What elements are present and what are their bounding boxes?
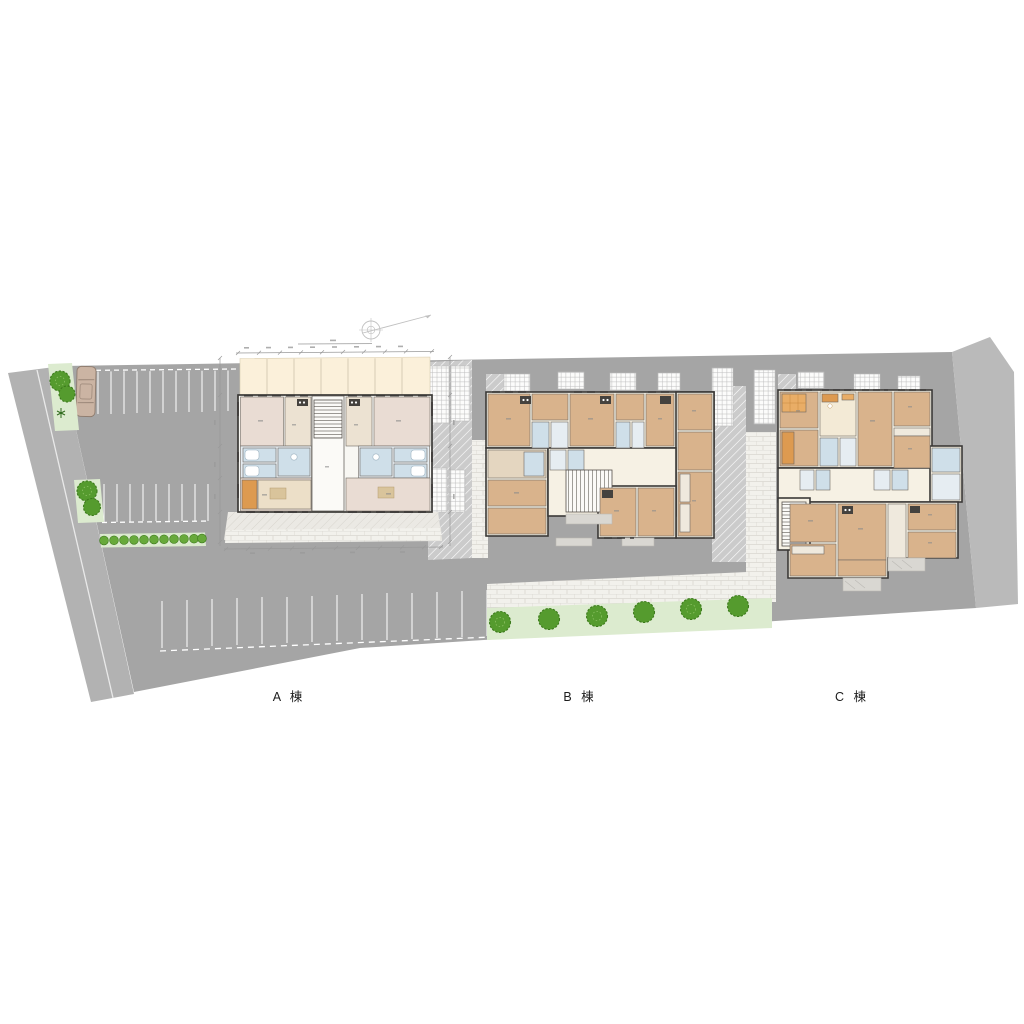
stairwell-a (314, 400, 342, 438)
building-a (214, 340, 455, 554)
site-plan-canvas: A 棟 B 棟 C 棟 (0, 0, 1024, 1024)
compass-icon (359, 315, 431, 342)
building-b-label: B 棟 (563, 689, 596, 704)
building-a-balcony (240, 357, 430, 397)
building-c-label: C 棟 (835, 689, 869, 704)
parked-car (76, 366, 96, 416)
hedge-row (100, 533, 207, 548)
tatami-corner (242, 480, 257, 509)
building-a-label: A 棟 (273, 689, 306, 704)
building-b (486, 372, 714, 546)
planting-strip-midleft (74, 479, 104, 523)
site-plan: A 棟 B 棟 C 棟 (0, 0, 1024, 1024)
